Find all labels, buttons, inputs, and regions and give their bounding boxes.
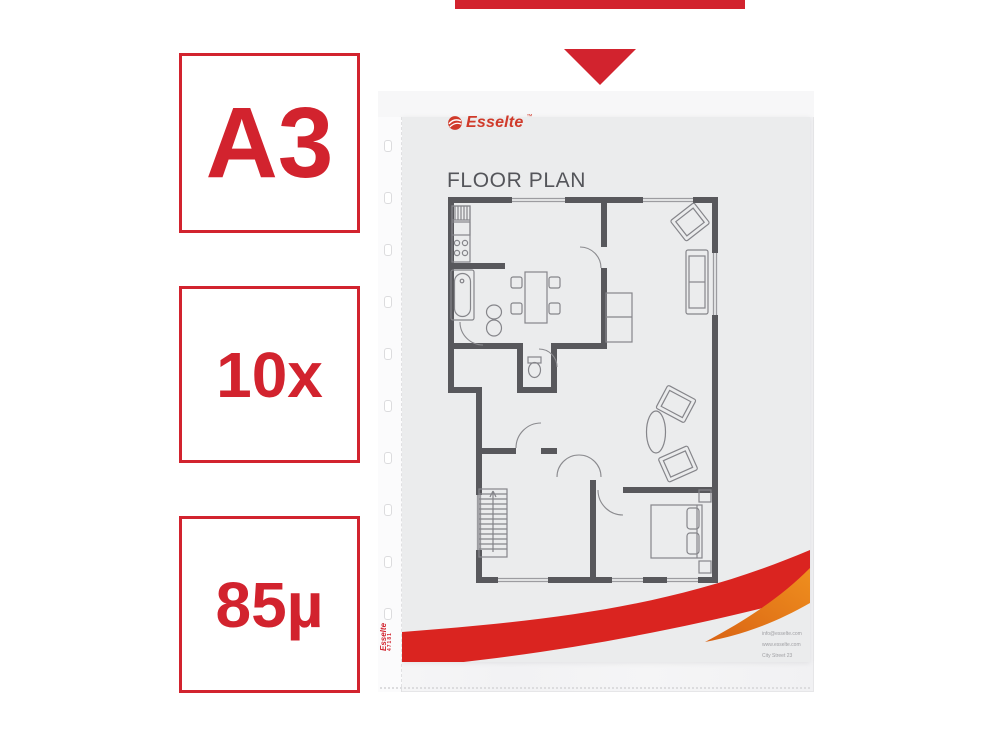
punch-hole (384, 244, 392, 256)
document-footer: info@esselte.com www.esselte.com City St… (762, 629, 802, 662)
red-swoosh (402, 550, 810, 662)
punch-hole (384, 192, 392, 204)
punch-hole (384, 348, 392, 360)
product-image: A3 10x 85µ (0, 0, 1000, 750)
document-title: FLOOR PLAN (447, 169, 586, 193)
badge-quantity: 10x (179, 286, 360, 463)
floor-plan-drawing (402, 117, 810, 662)
arrow-down-icon (564, 49, 636, 85)
plan-furniture (451, 203, 711, 573)
footer-line-email: info@esselte.com (762, 629, 802, 640)
footer-line-address: City Street 23 (762, 651, 802, 662)
trademark-symbol: ™ (526, 114, 532, 120)
plan-doors (460, 247, 623, 515)
punch-hole (384, 504, 392, 516)
brand-name: Esselte (466, 114, 523, 132)
sleeve-margin-brand: Esselte 47181 (380, 623, 394, 651)
sleeve-article-code: 47181 (387, 623, 394, 651)
esselte-swirl-icon (447, 115, 463, 131)
punch-hole (384, 556, 392, 568)
punch-hole (384, 400, 392, 412)
footer-line-web: www.esselte.com (762, 640, 802, 651)
filing-strip (378, 117, 402, 692)
sleeve-top-edge (378, 91, 814, 117)
punch-hole (384, 296, 392, 308)
gallery-bar (455, 0, 745, 9)
punch-hole (384, 452, 392, 464)
sleeve-brand-text: Esselte (380, 623, 387, 651)
brand-logo: Esselte ™ (447, 114, 532, 132)
badge-thickness: 85µ (179, 516, 360, 693)
punch-hole (384, 140, 392, 152)
badge-format: A3 (179, 53, 360, 233)
sleeve-bottom-seam (380, 687, 810, 689)
punch-hole (384, 608, 392, 620)
